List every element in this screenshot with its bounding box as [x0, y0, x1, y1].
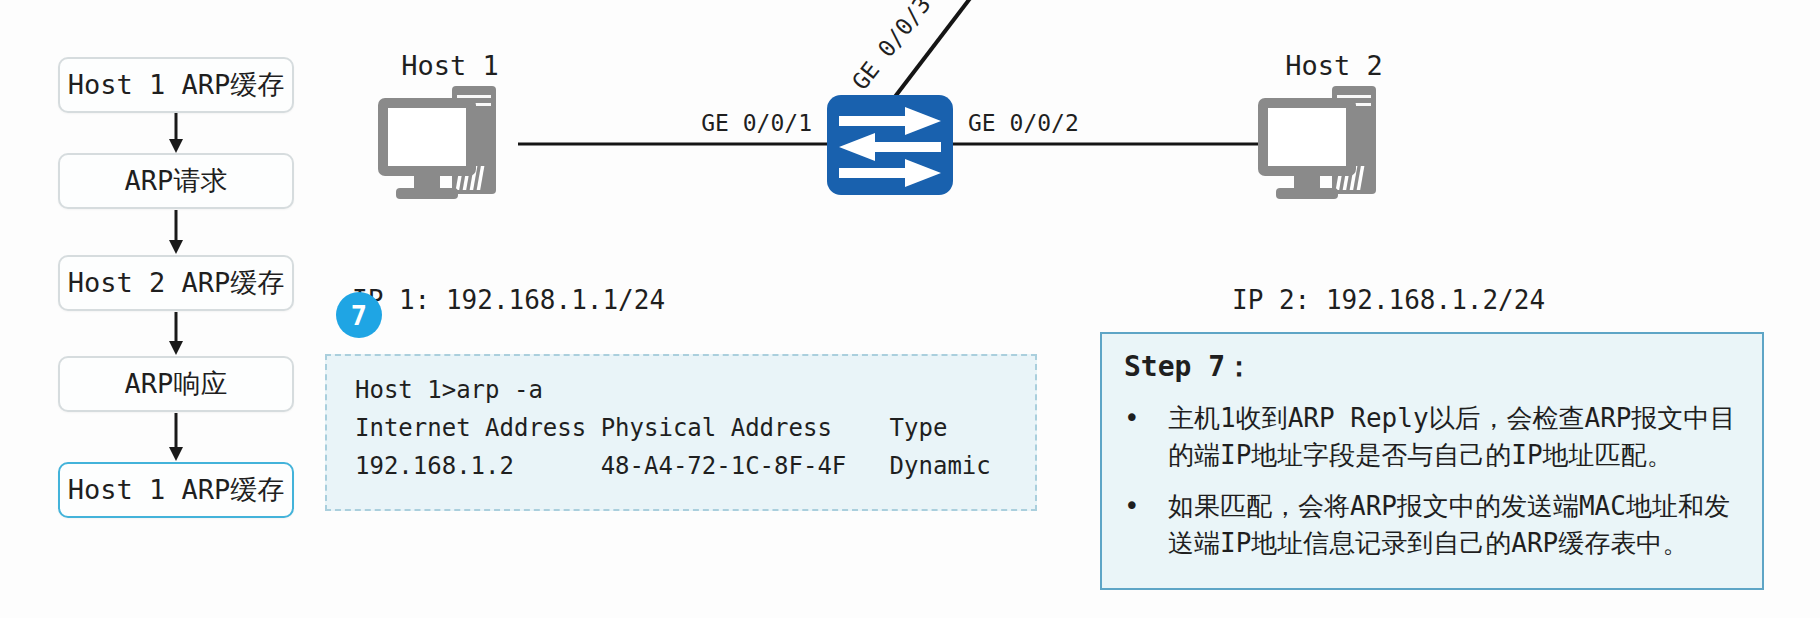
switch-icon — [827, 95, 953, 195]
flow-down-arrow-icon — [166, 113, 186, 153]
host1-computer-icon — [378, 86, 520, 206]
host2-computer-icon — [1258, 86, 1400, 206]
terminal-header-line: Internet Address Physical Address Type — [355, 409, 1025, 447]
step-bullet-item: • 主机1收到ARP Reply以后，会检查ARP报文中目的端IP地址字段是否与… — [1124, 400, 1742, 474]
flow-step-arp-request: ARP请求 — [58, 153, 294, 209]
switch-port-ge002-label: GE 0/0/2 — [968, 110, 1079, 136]
step-number-badge: 7 — [336, 292, 382, 338]
step7-explanation-panel: Step 7： • 主机1收到ARP Reply以后，会检查ARP报文中目的端I… — [1100, 332, 1764, 590]
step-bullet-text: 如果匹配，会将ARP报文中的发送端MAC地址和发送端IP地址信息记录到自己的AR… — [1168, 488, 1742, 562]
terminal-output-box: Host 1>arp -a Internet Address Physical … — [325, 354, 1037, 511]
host1-ip: IP 1: 192.168.1.1/24 — [352, 282, 728, 318]
step-bullet-item: • 如果匹配，会将ARP报文中的发送端MAC地址和发送端IP地址信息记录到自己的… — [1124, 488, 1742, 562]
flow-step-host1-arp-cache: Host 1 ARP缓存 — [58, 57, 294, 113]
host2-ip: IP 2: 192.168.1.2/24 — [1232, 282, 1608, 318]
flow-step-host2-arp-cache: Host 2 ARP缓存 — [58, 255, 294, 311]
host2-label: Host 2 — [1234, 50, 1434, 81]
switch-port-ge003-label: GE 0/0/3 — [847, 0, 936, 95]
flow-step-host1-arp-cache-final: Host 1 ARP缓存 — [58, 462, 294, 518]
bullet-dot-icon: • — [1124, 488, 1168, 562]
host1-label: Host 1 — [350, 50, 550, 81]
flow-step-label: ARP响应 — [125, 366, 228, 402]
flow-step-label: Host 1 ARP缓存 — [68, 472, 285, 508]
flow-step-label: Host 2 ARP缓存 — [68, 265, 285, 301]
flow-down-arrow-icon — [166, 312, 186, 355]
flow-step-label: Host 1 ARP缓存 — [68, 67, 285, 103]
step-bullet-text: 主机1收到ARP Reply以后，会检查ARP报文中目的端IP地址字段是否与自己… — [1168, 400, 1742, 474]
arp-slide-canvas: Host 1 ARP缓存 ARP请求 Host 2 ARP缓存 ARP响应 Ho… — [0, 0, 1820, 618]
terminal-entry-line: 192.168.1.2 48-A4-72-1C-8F-4F Dynamic — [355, 447, 1025, 485]
switch-port-ge001-label: GE 0/0/1 — [680, 110, 812, 136]
bullet-dot-icon: • — [1124, 400, 1168, 474]
flow-down-arrow-icon — [166, 210, 186, 254]
flow-down-arrow-icon — [166, 413, 186, 461]
flow-step-arp-reply: ARP响应 — [58, 356, 294, 412]
flow-step-label: ARP请求 — [125, 163, 228, 199]
terminal-command-line: Host 1>arp -a — [355, 371, 1025, 409]
step-panel-title: Step 7： — [1124, 348, 1742, 386]
